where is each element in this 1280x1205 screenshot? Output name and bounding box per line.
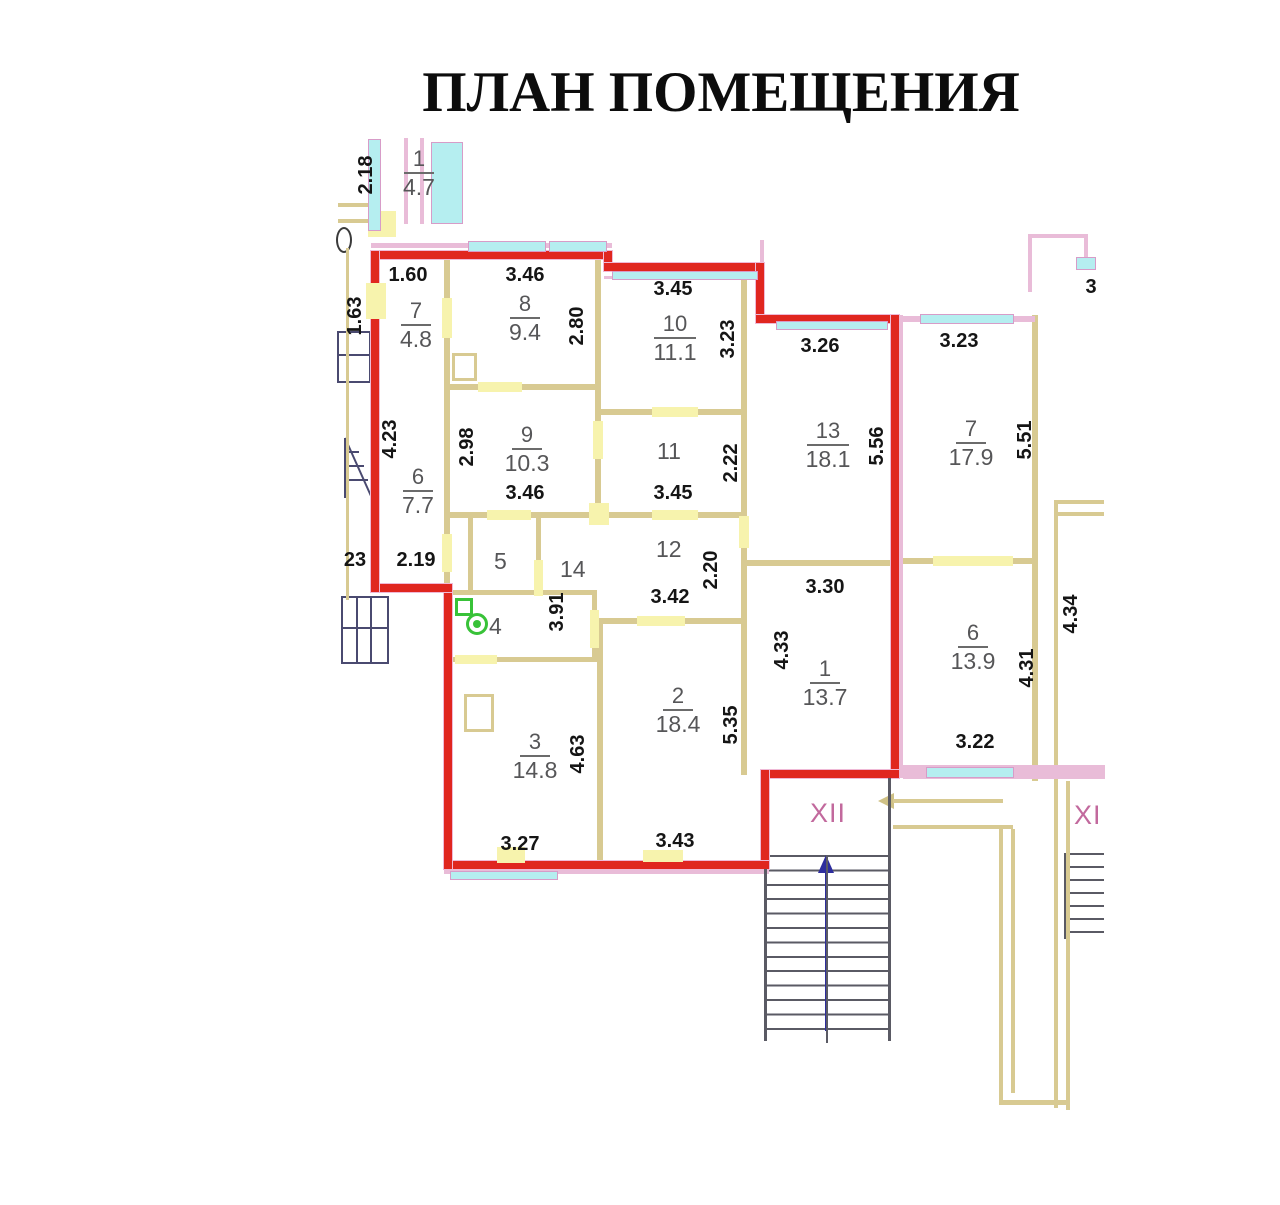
unit-boundary-segment — [371, 251, 612, 259]
wall-segment — [450, 384, 597, 390]
unit-boundary-segment — [444, 588, 452, 869]
room-area-label: 218.4 — [643, 683, 713, 738]
stair-edge-line — [764, 869, 767, 1041]
dimension-label: 5.35 — [719, 685, 743, 765]
door-opening — [637, 616, 685, 626]
room-area-label: 74.8 — [381, 298, 451, 353]
dimension-label: 2.20 — [699, 530, 723, 610]
door-opening — [478, 382, 522, 392]
exterior-wall-segment — [899, 315, 903, 778]
dimension-label: 1.63 — [343, 276, 367, 356]
dimension-label: 4.34 — [1059, 574, 1083, 654]
unit-boundary-segment — [371, 584, 452, 592]
room-area-label: 1318.1 — [793, 418, 863, 473]
room-number-label: 4 — [489, 613, 502, 640]
room-area: 4.8 — [381, 326, 451, 353]
door-opening — [487, 510, 531, 520]
dimension-label: 3.22 — [935, 730, 1015, 754]
room-number-label: 11 — [657, 438, 681, 465]
unit-boundary-segment — [891, 315, 899, 778]
dimension-label: 2.22 — [719, 423, 743, 503]
room-number: 6 — [403, 464, 433, 492]
room-number-label: 5 — [494, 548, 507, 575]
dimension-label: 2.98 — [455, 407, 479, 487]
dimension-label: 5.51 — [1013, 400, 1037, 480]
room-area: 4.7 — [384, 174, 454, 201]
corridor-arrow-icon — [878, 793, 894, 809]
exterior-wall-segment — [760, 240, 764, 265]
dimension-label: 3.26 — [780, 334, 860, 358]
dimension-label: 3.43 — [635, 829, 715, 853]
window — [549, 241, 607, 252]
dimension-label: 3.46 — [485, 481, 565, 505]
dimension-label: 1.60 — [368, 263, 448, 287]
dimension-label: 4.23 — [378, 399, 402, 479]
wall-segment — [1057, 500, 1104, 504]
unit-boundary-segment — [761, 770, 769, 869]
dimension-label: 3.45 — [633, 277, 713, 301]
stair-edge-line — [826, 855, 828, 1043]
door-opening — [933, 556, 1013, 566]
wall-segment — [1054, 500, 1058, 1108]
fixture-icon — [336, 227, 352, 253]
room-area-label: 910.3 — [492, 422, 562, 477]
room-number-label: 12 — [656, 536, 682, 563]
stair-edge-line — [1064, 853, 1066, 939]
dimension-label: 5.56 — [865, 406, 889, 486]
room-number: 6 — [958, 620, 988, 648]
room-area: 13.7 — [790, 684, 860, 711]
exterior-wall-segment — [1028, 234, 1032, 292]
window — [450, 871, 558, 880]
room-number: 13 — [807, 418, 849, 446]
wall-segment — [1001, 1100, 1069, 1105]
room-area: 10.3 — [492, 450, 562, 477]
dimension-label: 4.31 — [1015, 628, 1039, 708]
dimension-label: 3.27 — [480, 832, 560, 856]
staircase-label: XI — [1074, 800, 1102, 831]
room-number: 1 — [404, 146, 434, 174]
room-number: 3 — [520, 729, 550, 757]
room-area: 7.7 — [383, 492, 453, 519]
window — [920, 314, 1014, 324]
wall-niche — [464, 694, 494, 732]
door-opening — [652, 407, 698, 417]
dimension-label: 2.18 — [354, 135, 378, 215]
room-area: 18.4 — [643, 711, 713, 738]
room-area-label: 613.9 — [938, 620, 1008, 675]
wall-niche — [452, 353, 477, 381]
dimension-label: 3.42 — [630, 585, 710, 609]
room-area: 11.1 — [640, 339, 710, 366]
dimension-label: 3.23 — [716, 299, 740, 379]
door-opening — [534, 560, 543, 596]
dimension-label: 3 — [1051, 275, 1108, 299]
wall-segment — [450, 590, 597, 595]
wall-segment — [597, 618, 603, 865]
wall-segment — [338, 219, 370, 223]
door-opening — [739, 516, 749, 548]
staircase-xi-treads — [1066, 853, 1104, 939]
room-area-label: 1011.1 — [640, 311, 710, 366]
toilet-fixture-dot — [473, 620, 481, 628]
floor-plan: 14.774.889.41011.11318.1717.9910.367.761… — [0, 0, 1108, 1205]
room-number: 1 — [810, 656, 840, 684]
wall-segment — [1057, 512, 1104, 516]
dimension-label: 4.63 — [566, 714, 590, 794]
wall-segment — [595, 251, 601, 518]
room-number: 7 — [956, 416, 986, 444]
dimension-label: 3.23 — [919, 329, 999, 353]
room-area: 18.1 — [793, 446, 863, 473]
dimension-label: 2.19 — [376, 548, 456, 572]
room-area-label: 89.4 — [490, 291, 560, 346]
room-area: 17.9 — [936, 444, 1006, 471]
wall-segment — [468, 518, 473, 594]
room-area-label: 14.7 — [384, 146, 454, 201]
room-number: 9 — [512, 422, 542, 450]
room-number: 2 — [663, 683, 693, 711]
room-area-label: 314.8 — [500, 729, 570, 784]
dimension-label: 2.80 — [565, 286, 589, 366]
exterior-wall-segment — [1028, 234, 1088, 238]
room-area-label: 113.7 — [790, 656, 860, 711]
wall-segment — [747, 560, 893, 566]
room-area: 9.4 — [490, 319, 560, 346]
dimension-label: 3.30 — [785, 575, 865, 599]
door-opening — [455, 655, 497, 664]
unit-boundary-segment — [761, 770, 899, 778]
door-opening — [652, 510, 698, 520]
dimension-label: 4.33 — [770, 610, 794, 690]
balcony-grid-window — [341, 596, 389, 664]
dimension-label: 3.46 — [485, 263, 565, 287]
unit-boundary-segment — [604, 263, 764, 271]
wall-segment — [999, 829, 1003, 1105]
staircase-label: XII — [810, 798, 846, 829]
door-opening — [593, 421, 603, 459]
window — [1076, 257, 1096, 270]
unit-boundary-segment — [444, 861, 769, 869]
window — [926, 767, 1014, 778]
wall-segment — [893, 799, 1003, 803]
dimension-label: 3.45 — [633, 481, 713, 505]
stair-edge-line — [888, 778, 891, 1041]
dimension-label: 3.91 — [545, 572, 569, 652]
wall-segment — [1011, 829, 1015, 1093]
window — [468, 241, 546, 252]
room-area-label: 717.9 — [936, 416, 1006, 471]
window — [776, 321, 888, 330]
room-number: 8 — [510, 291, 540, 319]
room-area: 14.8 — [500, 757, 570, 784]
wall-segment — [893, 825, 1013, 829]
door-opening — [589, 503, 609, 525]
door-opening — [590, 610, 599, 648]
room-number: 10 — [654, 311, 696, 339]
sink-fixture-icon — [455, 598, 473, 616]
room-area: 13.9 — [938, 648, 1008, 675]
wall-segment — [1066, 781, 1070, 1110]
room-number: 7 — [401, 298, 431, 326]
page-canvas: ПЛАН ПОМЕЩЕНИЯ 14.774.889.41011.11318.17… — [0, 0, 1280, 1205]
